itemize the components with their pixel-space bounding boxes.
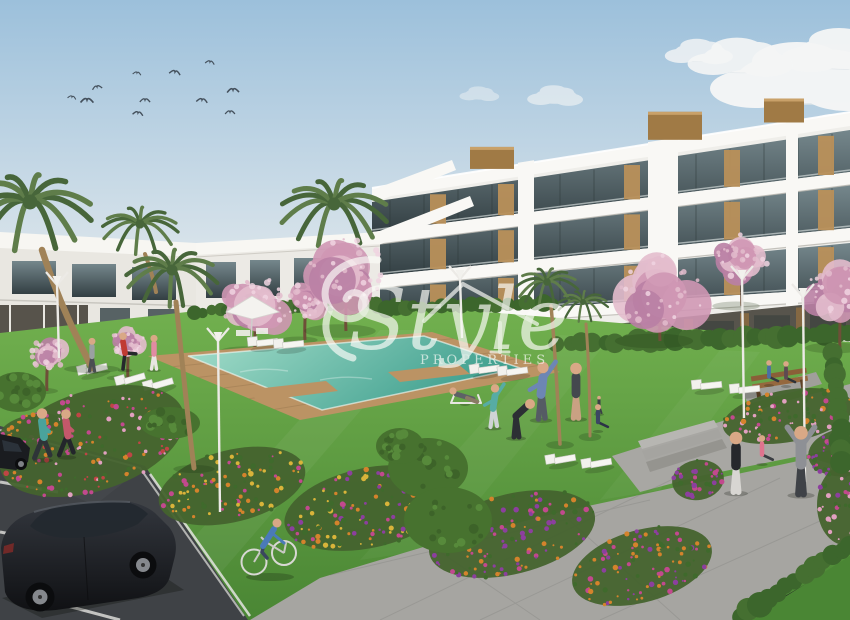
watermark-brand-sub: PROPERTIES [420, 353, 549, 368]
watermark-logo: Style PROPERTIES [325, 260, 568, 370]
property-render-image: Style PROPERTIES [0, 0, 850, 620]
shrub [376, 428, 424, 464]
black-hatchback-car [1, 501, 176, 612]
window [72, 264, 116, 297]
shrub [404, 487, 492, 553]
